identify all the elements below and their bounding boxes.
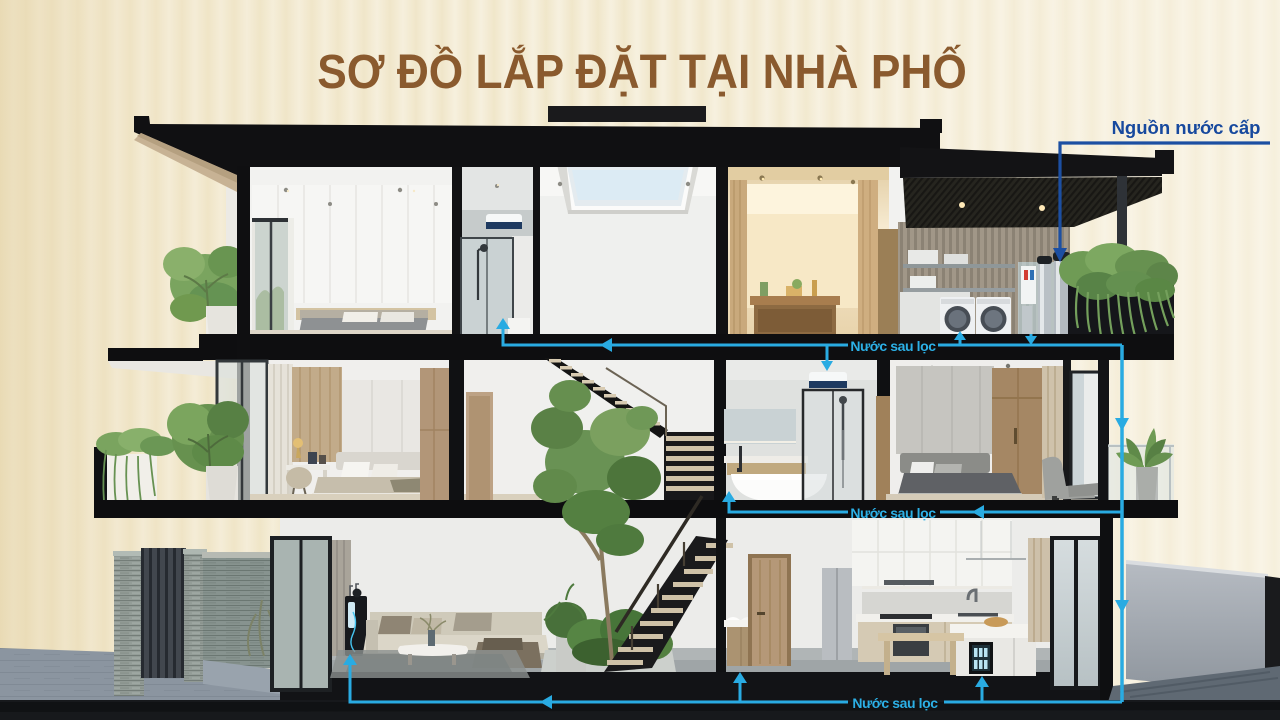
svg-text:Nước sau lọc: Nước sau lọc	[852, 695, 938, 711]
svg-text:Nước sau lọc: Nước sau lọc	[850, 338, 936, 354]
svg-text:SƠ ĐỒ LẮP ĐẶT TẠI NHÀ PHỐ: SƠ ĐỒ LẮP ĐẶT TẠI NHÀ PHỐ	[317, 44, 967, 98]
svg-text:Nguồn nước cấp: Nguồn nước cấp	[1112, 117, 1261, 138]
svg-text:Nước sau lọc: Nước sau lọc	[850, 505, 936, 521]
